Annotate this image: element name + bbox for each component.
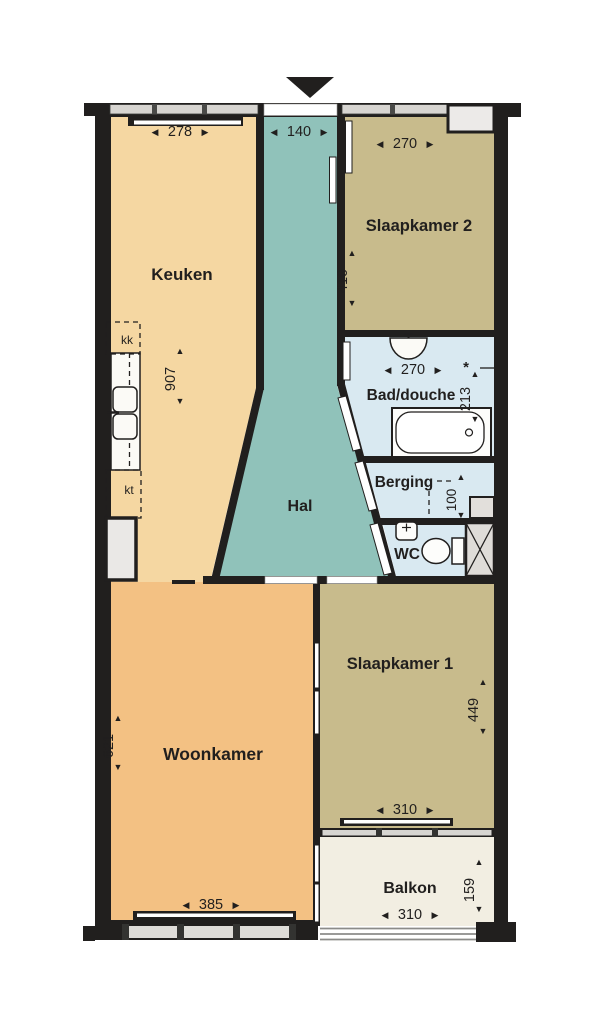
dim-arrow: ▼: [114, 762, 123, 772]
dim-woonkamer-depth: 621: [101, 734, 117, 758]
dim-arrow: ▶: [435, 365, 442, 375]
dim-arrow: ▲: [479, 677, 488, 687]
dim-arrow: ▲: [475, 857, 484, 867]
wall-pier-bottom-left: [83, 926, 95, 941]
woonkamer-slaapkamer1-door-leaf: [315, 643, 320, 688]
label-berging: Berging: [375, 474, 434, 491]
dim-arrow: ◀: [271, 127, 278, 137]
label-woonkamer: Woonkamer: [163, 744, 263, 764]
dim-arrow: ◀: [382, 910, 389, 920]
mullion: [376, 828, 382, 837]
dim-arrow: ▼: [479, 726, 488, 736]
window-glass-woonkamer: [137, 914, 293, 918]
sink-basin-icon: [113, 387, 137, 412]
dim-arrow: ▶: [427, 139, 434, 149]
dim-arrow: ▶: [432, 910, 439, 920]
dim-arrow: ▶: [202, 127, 209, 137]
dim-arrow: ▲: [114, 713, 123, 723]
mullion: [202, 104, 207, 115]
dim-arrow: ◀: [377, 139, 384, 149]
label-kk: kk: [121, 333, 134, 347]
hal-woonkamer-opening: [265, 577, 317, 584]
dim-slaapkamer2-depth: 410: [335, 269, 351, 293]
dim-arrow: ▲: [176, 346, 185, 356]
recess-top-right: [448, 105, 494, 132]
wall-keuken-hal: [256, 117, 264, 390]
dim-arrow: ▲: [457, 472, 466, 482]
glazing-band-woonkamer: [124, 926, 296, 939]
dim-slaapkamer1-width: 310: [393, 802, 417, 818]
entrance-arrow-icon: [286, 77, 334, 98]
dim-bad-douche-width: 270: [401, 362, 425, 378]
dim-arrow: ▶: [427, 805, 434, 815]
toilet-bowl-icon: [422, 539, 450, 564]
window-band-keuken: [110, 105, 258, 115]
shaft-berging: [470, 497, 494, 518]
dim-keuken-width: 278: [168, 124, 192, 140]
shaft-keuken: [106, 518, 136, 580]
dim-keuken-depth: 907: [163, 367, 179, 391]
balkon-door-leaf: [315, 845, 320, 882]
mullion: [177, 924, 184, 940]
wall-right: [494, 103, 508, 942]
dim-slaapkamer2-width: 270: [393, 136, 417, 152]
mullion: [122, 924, 129, 940]
entrance-door-leaf: [330, 157, 337, 203]
dim-balkon-depth: 159: [462, 878, 478, 902]
wall-pier-top-left: [84, 103, 95, 116]
entrance-door-opening: [264, 104, 337, 116]
dim-bad-douche-depth: 213: [458, 387, 474, 411]
floor-plan: Keuken Hal Slaapkamer 2 Bad/douche Bergi…: [0, 0, 600, 1024]
dim-arrow: ▼: [471, 414, 480, 424]
wall-stub-keuken-woonkamer: [172, 580, 195, 584]
slaapkamer2-door-leaf: [346, 121, 353, 173]
wall-foot-bottom-right: [476, 922, 516, 942]
mullion: [289, 924, 296, 940]
dim-balkon-width: 310: [398, 907, 422, 923]
dim-arrow: ▼: [457, 510, 466, 520]
dim-note-asterisk: *: [463, 359, 469, 376]
glazing-band-balkon: [322, 830, 492, 837]
label-kt: kt: [124, 483, 134, 497]
bad-douche-door-leaf: [343, 342, 350, 380]
mullion: [432, 828, 438, 837]
label-wc: WC: [394, 546, 420, 563]
hal-slaapkamer1-opening: [327, 577, 377, 584]
window-glass-slaapkamer1: [344, 820, 450, 824]
dim-woonkamer-width: 385: [199, 897, 223, 913]
sink-basin-icon: [113, 414, 137, 439]
dim-slaapkamer1-depth: 449: [466, 698, 482, 722]
label-bad-douche: Bad/douche: [367, 387, 456, 404]
dim-arrow: ◀: [152, 127, 159, 137]
dim-arrow: ◀: [385, 365, 392, 375]
label-keuken: Keuken: [151, 265, 212, 284]
label-balkon: Balkon: [383, 880, 436, 897]
label-slaapkamer1: Slaapkamer 1: [347, 655, 453, 673]
floor-plan-canvas: Keuken Hal Slaapkamer 2 Bad/douche Bergi…: [0, 0, 600, 1024]
label-hal: Hal: [288, 498, 313, 515]
balkon-door-opening: [315, 884, 320, 922]
mullion: [390, 104, 395, 115]
dim-arrow: ▲: [471, 369, 480, 379]
dim-arrow: ▼: [176, 396, 185, 406]
wall-pier-top-right: [508, 103, 521, 117]
dim-berging-depth: 100: [444, 489, 459, 512]
dim-hal-width: 140: [287, 124, 311, 140]
dim-arrow: ▶: [233, 900, 240, 910]
mullion: [233, 924, 240, 940]
dim-arrow: ◀: [377, 805, 384, 815]
mullion: [152, 104, 157, 115]
wall-slaapkamer2-bad: [337, 330, 494, 337]
toilet-tank-icon: [452, 538, 464, 564]
dim-arrow: ▼: [475, 904, 484, 914]
dim-arrow: ▼: [348, 298, 357, 308]
label-slaapkamer2: Slaapkamer 2: [366, 217, 472, 235]
woonkamer-slaapkamer1-door-opening: [315, 691, 320, 734]
dim-arrow: ▲: [348, 248, 357, 258]
dim-arrow: ◀: [183, 900, 190, 910]
bathtub-drain-icon: [466, 429, 473, 436]
dim-arrow: ▶: [321, 127, 328, 137]
